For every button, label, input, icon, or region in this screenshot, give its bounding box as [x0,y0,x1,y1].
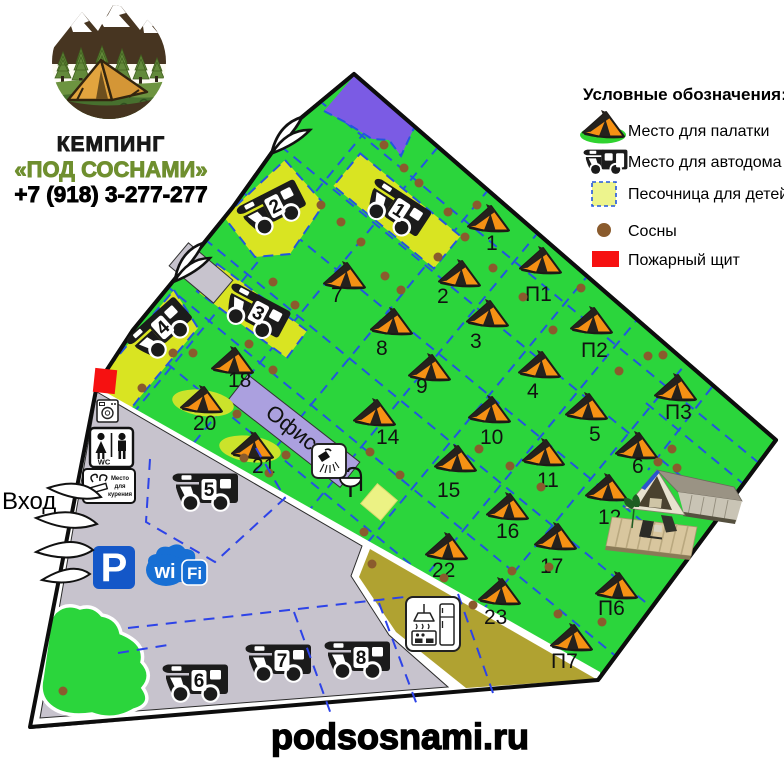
svg-text:П6: П6 [598,597,625,620]
svg-text:7: 7 [331,284,343,307]
svg-text:П2: П2 [581,339,608,362]
svg-text:wi: wi [153,561,175,583]
svg-text:Пожарный щит: Пожарный щит [628,252,741,269]
svg-text:18: 18 [228,369,251,392]
svg-text:КЕМПИНГ: КЕМПИНГ [57,133,166,156]
svg-text:8: 8 [376,337,388,360]
svg-text:П1: П1 [525,283,552,306]
svg-text:15: 15 [437,479,460,502]
svg-text:Песочница для детей: Песочница для детей [628,186,784,203]
svg-text:Fi: Fi [187,564,202,583]
svg-text:4: 4 [527,380,539,403]
svg-text:+7 (918) 3-277-277: +7 (918) 3-277-277 [14,182,207,207]
svg-text:2: 2 [437,285,449,308]
svg-text:7: 7 [277,651,288,672]
svg-text:5: 5 [589,423,601,446]
svg-text:Место для автодома: Место для автодома [628,154,782,171]
svg-text:Сосны: Сосны [628,223,677,240]
svg-text:6: 6 [194,671,205,692]
svg-text:«ПОД СОСНАМИ»: «ПОД СОСНАМИ» [14,157,207,182]
svg-text:podsosnami.ru: podsosnami.ru [271,716,529,757]
svg-text:23: 23 [484,606,507,629]
svg-text:3: 3 [470,330,482,353]
svg-text:Место для палатки: Место для палатки [628,123,769,140]
svg-text:для: для [114,484,126,490]
svg-text:10: 10 [480,426,503,449]
svg-text:9: 9 [416,375,428,398]
svg-text:1: 1 [486,232,498,255]
svg-text:6: 6 [632,455,644,478]
svg-text:20: 20 [193,412,216,435]
svg-text:Условные обозначения:: Условные обозначения: [583,85,784,104]
svg-text:14: 14 [376,426,400,449]
svg-text:П3: П3 [665,401,692,424]
svg-text:5: 5 [204,480,215,501]
svg-text:8: 8 [356,648,367,669]
svg-text:П7: П7 [551,650,578,673]
svg-text:Место: Место [111,476,129,482]
svg-text:WC: WC [98,458,111,467]
svg-text:Вход: Вход [2,488,56,515]
svg-text:16: 16 [496,520,519,543]
svg-text:курения: курения [108,492,133,498]
svg-text:P: P [101,546,128,590]
